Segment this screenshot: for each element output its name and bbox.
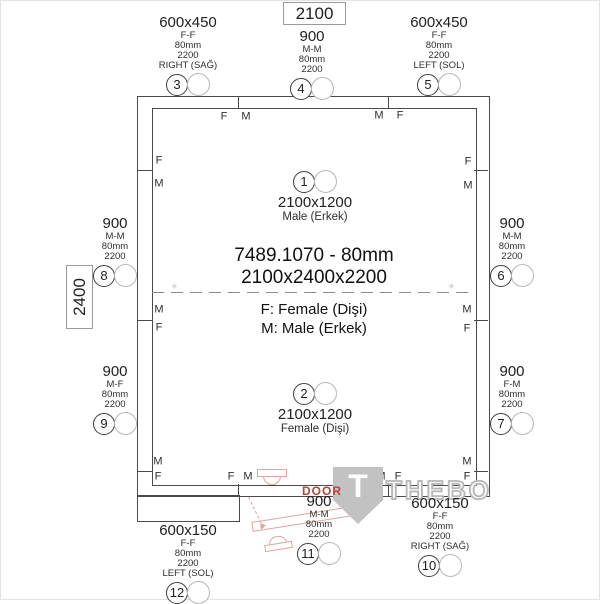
- panel-number-badge: 10: [418, 555, 440, 577]
- empty-check-circle: [311, 77, 334, 100]
- panel-height: 2200: [264, 530, 374, 540]
- panel-height: 2200: [457, 400, 567, 410]
- panel-type: Female (Dişi): [255, 423, 375, 436]
- empty-check-circle: [114, 412, 137, 435]
- panel-callout-5: 600x450 F-F 80mm 2200 LEFT (SOL) 5: [384, 15, 494, 96]
- panel-joint-label: F: [156, 156, 163, 167]
- panel-number-badge: 8: [93, 265, 115, 287]
- panel-joint-label: M: [153, 457, 162, 468]
- panel-joint-label: F: [228, 472, 235, 483]
- panel-callout-3: 600x450 F-F 80mm 2200 RIGHT (SAĞ) 3: [133, 15, 243, 96]
- joint-tick-top-left: [238, 96, 239, 108]
- panel-number-badge: 4: [290, 78, 312, 100]
- panel-number-badge: 12: [166, 582, 188, 604]
- panel-height: 2200: [60, 400, 170, 410]
- panel-callout-4: 900 M-M 80mm 2200 4: [257, 29, 367, 100]
- empty-check-circle: [511, 412, 534, 435]
- empty-check-circle: [114, 264, 137, 287]
- panel-number-badge: 7: [490, 413, 512, 435]
- panel-size: 900: [60, 216, 170, 232]
- room-dimensions: 2100x2400x2200: [184, 267, 444, 289]
- empty-check-circle: [511, 264, 534, 287]
- joint-tick-left-3: [137, 471, 152, 472]
- panel-size: 900: [457, 216, 567, 232]
- ceiling-panel-1-callout: 1 2100x1200 Male (Erkek): [255, 168, 375, 224]
- ceiling-panel-2-callout: 2 2100x1200 Female (Dişi): [255, 380, 375, 436]
- panel-joint-label: F: [155, 472, 162, 483]
- legend-male: M: Male (Erkek): [184, 319, 444, 338]
- panel-joint-label: M: [462, 457, 471, 468]
- panel-number-badge: 6: [490, 265, 512, 287]
- panel-joint-label: M: [463, 181, 472, 192]
- door-label: DOOR: [302, 484, 342, 498]
- panel-size: 900: [457, 364, 567, 380]
- joint-tick-right-2: [474, 320, 488, 321]
- door-hinge-icon: [257, 469, 287, 485]
- panel-callout-6: 900 M-M 80mm 2200 6: [457, 216, 567, 287]
- panel-size: 600x150: [385, 496, 495, 512]
- panel-size: 900: [60, 364, 170, 380]
- panel-height: 2200: [457, 252, 567, 262]
- joint-tick-top-right: [388, 96, 389, 108]
- panel-size: 900: [257, 29, 367, 45]
- drawing-code: 7489.1070 - 80mm: [184, 245, 444, 267]
- panel-callout-9: 900 M-F 80mm 2200 9: [60, 364, 170, 435]
- empty-check-circle: [187, 581, 210, 604]
- legend-female: F: Female (Dişi): [184, 300, 444, 319]
- panel-joint-label: M: [241, 112, 250, 123]
- legend-block: F: Female (Dişi) M: Male (Erkek): [184, 300, 444, 338]
- panel-joint-label: F: [397, 111, 404, 122]
- panel-joint-label: F: [221, 112, 228, 123]
- panel-joint-label: F: [156, 323, 163, 334]
- panel-type: Male (Erkek): [255, 211, 375, 224]
- empty-check-circle: [439, 554, 462, 577]
- dimension-width-box: 2100: [283, 2, 346, 25]
- panel-number-badge: 1: [293, 171, 315, 193]
- dimension-width-value: 2100: [296, 4, 334, 24]
- panel-number-badge: 9: [93, 413, 115, 435]
- panel-callout-12: 600x150 F-F 80mm 2200 LEFT (SOL) 12: [133, 523, 243, 604]
- drawing-title-block: 7489.1070 - 80mm 2100x2400x2200: [184, 245, 444, 289]
- empty-check-circle: [314, 170, 337, 193]
- panel-joint-label: F: [464, 324, 471, 335]
- joint-tick-left-2: [137, 320, 152, 321]
- panel-callout-8: 900 M-M 80mm 2200 8: [60, 216, 170, 287]
- panel-joint-label: M: [462, 305, 471, 316]
- panel-joint-label: M: [154, 179, 163, 190]
- panel-number-badge: 3: [166, 74, 188, 96]
- panel-joint-label: M: [154, 305, 163, 316]
- panel-joint-label: M: [243, 472, 252, 483]
- split-end-mark-right: ✳: [448, 283, 455, 291]
- panel-size: 2100x1200: [255, 407, 375, 423]
- joint-tick-right-3: [474, 471, 488, 472]
- bottom-left-panel-strip: [137, 495, 240, 522]
- panel-size: 600x450: [384, 15, 494, 31]
- panel-size: 600x150: [133, 523, 243, 539]
- panel-orientation: RIGHT (SAĞ): [133, 61, 243, 71]
- panel-callout-10: 600x150 F-F 80mm 2200 RIGHT (SAĞ) 10: [385, 496, 495, 577]
- ceiling-panel-split-line: [152, 292, 475, 293]
- panel-orientation: LEFT (SOL): [133, 569, 243, 579]
- panel-callout-11: 900 M-M 80mm 2200 11: [264, 494, 374, 565]
- joint-tick-right-1: [474, 170, 488, 171]
- panel-callout-7: 900 F-M 80mm 2200 7: [457, 364, 567, 435]
- panel-number-badge: 5: [417, 74, 439, 96]
- empty-check-circle: [318, 542, 341, 565]
- panel-size: 2100x1200: [255, 195, 375, 211]
- panel-number-badge: 11: [297, 543, 319, 565]
- panel-orientation: RIGHT (SAĞ): [385, 542, 495, 552]
- panel-height: 2200: [60, 252, 170, 262]
- panel-joint-label: M: [374, 111, 383, 122]
- empty-check-circle: [187, 73, 210, 96]
- joint-tick-left-1: [137, 170, 152, 171]
- registered-mark: ®: [375, 492, 382, 502]
- panel-orientation: LEFT (SOL): [384, 61, 494, 71]
- split-end-mark-left: ✳: [171, 283, 178, 291]
- empty-check-circle: [438, 73, 461, 96]
- panel-number-badge: 2: [293, 383, 315, 405]
- panel-height: 2200: [257, 65, 367, 75]
- panel-size: 600x450: [133, 15, 243, 31]
- empty-check-circle: [314, 382, 337, 405]
- panel-joint-label: F: [465, 157, 472, 168]
